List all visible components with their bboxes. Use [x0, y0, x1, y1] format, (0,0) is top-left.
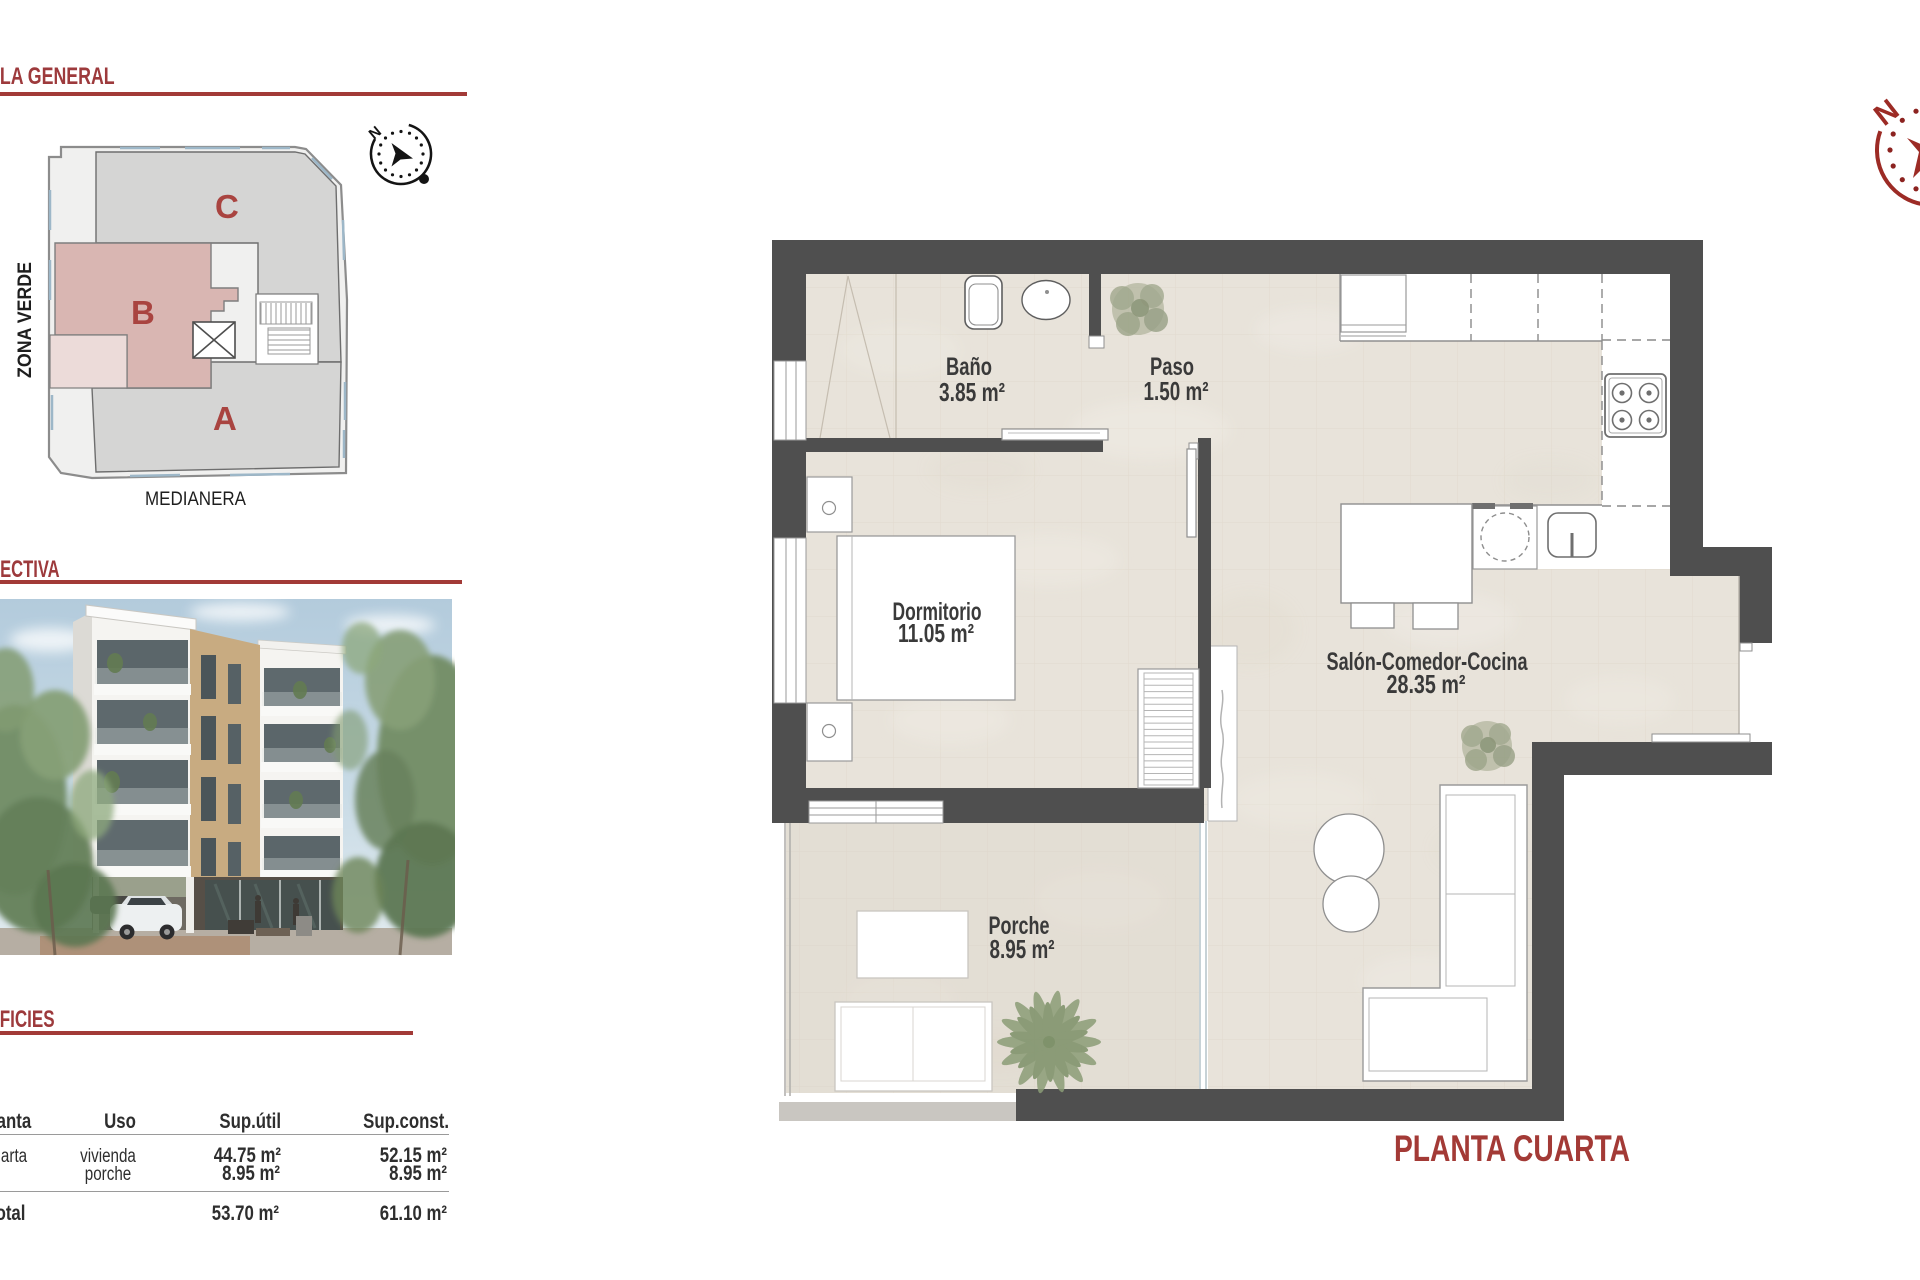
svg-text:A: A	[213, 400, 237, 437]
svg-text:3.85 m²: 3.85 m²	[939, 377, 1005, 407]
svg-text:1.50 m²: 1.50 m²	[1144, 376, 1209, 406]
svg-text:PLANTA CUARTA: PLANTA CUARTA	[1394, 1128, 1630, 1169]
svg-text:N: N	[366, 123, 385, 143]
svg-text:ZONA VERDE: ZONA VERDE	[15, 262, 36, 378]
svg-text:MEDIANERA: MEDIANERA	[145, 489, 246, 510]
svg-text:B: B	[131, 294, 155, 331]
svg-text:11.05 m²: 11.05 m²	[898, 618, 974, 648]
svg-text:N: N	[1868, 93, 1905, 132]
svg-text:8.95 m²: 8.95 m²	[990, 934, 1055, 964]
svg-text:C: C	[215, 188, 239, 225]
svg-text:28.35 m²: 28.35 m²	[1387, 669, 1466, 699]
